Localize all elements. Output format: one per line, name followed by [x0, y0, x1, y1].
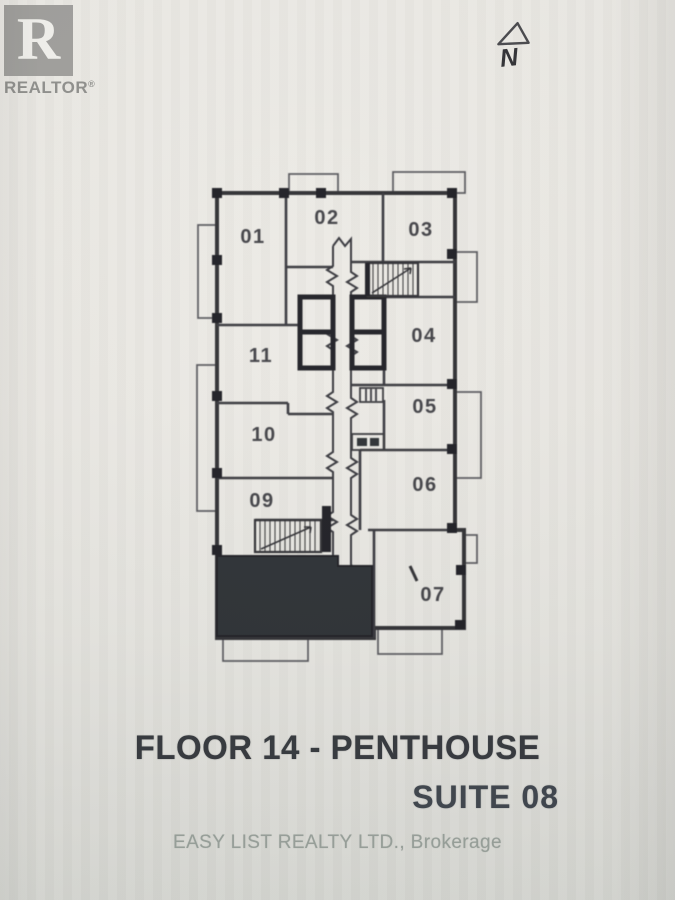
- balcony-right-upper: [455, 252, 477, 302]
- stair-direction-arrow: [261, 527, 311, 549]
- balcony-left-upper: [198, 225, 217, 318]
- door-swing-07: [410, 566, 417, 581]
- unit-label-07: 07: [420, 584, 445, 606]
- stairwell-top: [365, 263, 418, 296]
- service-boxes: [352, 388, 384, 450]
- balcony-right-lower: [455, 392, 481, 478]
- caption-suite-number: SUITE 08: [412, 779, 559, 816]
- elevator-core: [300, 297, 384, 368]
- unit-label-04: 04: [411, 325, 436, 347]
- unit-label-02: 02: [314, 207, 339, 229]
- caption-floor-title: FLOOR 14 - PENTHOUSE: [10, 729, 665, 768]
- stairwell-bottom: [255, 506, 331, 552]
- service-box-lower: [352, 434, 384, 450]
- unit-label-06: 06: [412, 474, 437, 496]
- unit-label-11: 11: [249, 345, 273, 367]
- unit-label-05: 05: [412, 396, 437, 418]
- balcony-left-lower: [197, 365, 217, 511]
- balcony-bottom-left: [223, 638, 308, 661]
- unit-label-01: 01: [240, 226, 265, 248]
- highlighted-suite-08: [217, 556, 372, 636]
- unit-label-09: 09: [249, 490, 274, 512]
- balcony-top-center: [289, 174, 338, 193]
- unit-label-03: 03: [408, 219, 433, 241]
- scanned-floor-plan-page: R REALTOR® N: [0, 0, 675, 900]
- balcony-bottom-right: [378, 628, 442, 654]
- unit-label-10: 10: [251, 424, 276, 446]
- brokerage-watermark: EASY LIST REALTY LTD., Brokerage: [0, 832, 675, 854]
